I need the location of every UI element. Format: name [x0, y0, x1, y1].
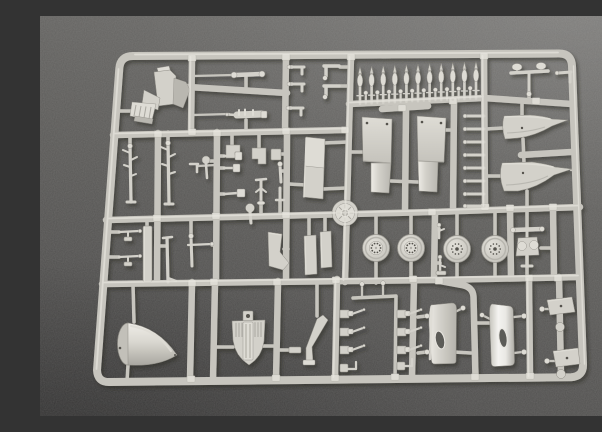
- sprue-photo: [40, 16, 602, 416]
- sprue-photo-canvas: [40, 16, 602, 416]
- part-rectangular-panel: [303, 137, 325, 199]
